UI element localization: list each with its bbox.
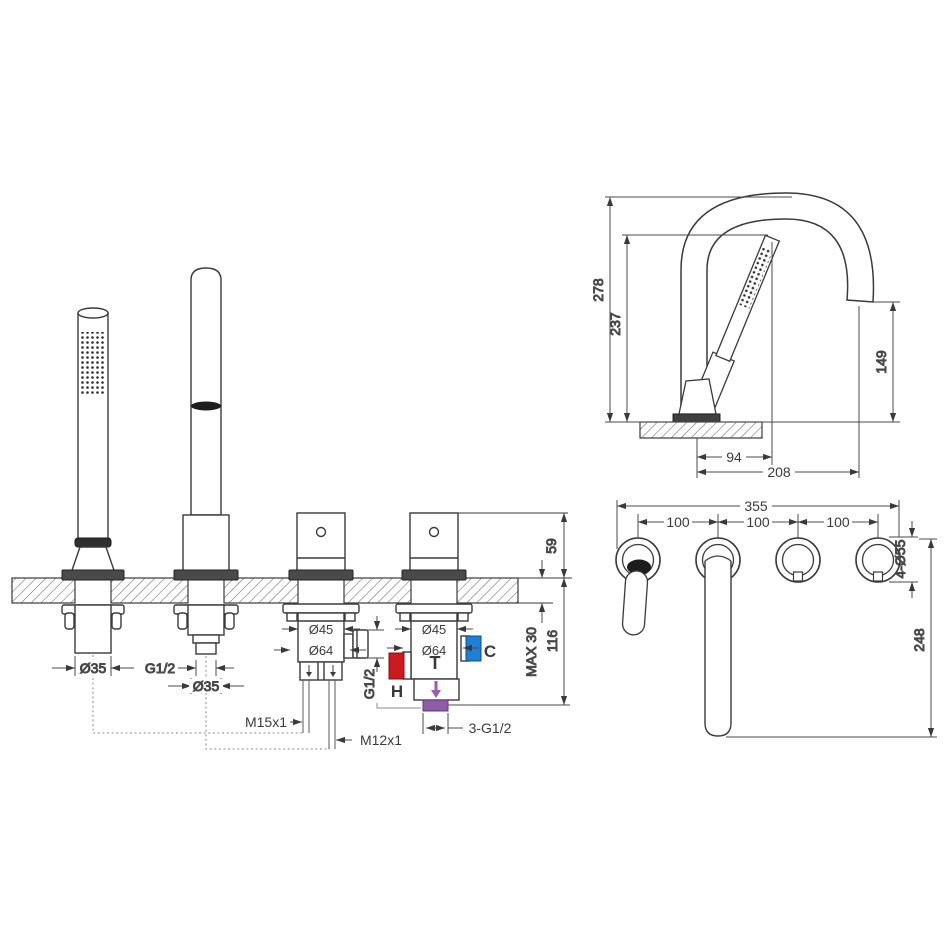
spout-underdeck-body [188, 605, 224, 635]
hot-inlet-block [389, 653, 404, 679]
outlet-left-thread-label: M15x1 [245, 714, 287, 730]
spout-diameter-label: Ø35 [193, 678, 220, 694]
connection-routing-lines [93, 655, 330, 749]
diverter-flange [283, 604, 359, 613]
mixer-handle-screw [430, 528, 439, 537]
spout-projection-label: 248 [911, 628, 927, 652]
mixer-flange [396, 604, 472, 613]
dim-spout-diameter: Ø35 [168, 678, 244, 694]
total-span-label: 355 [744, 498, 768, 514]
outlet-right-thread-label: M12x1 [360, 732, 402, 748]
dim-spout-thread: G1/2 [145, 660, 234, 676]
mix-outlet-block [423, 700, 448, 711]
diverter-handle [297, 513, 345, 572]
spout-base-block [183, 515, 229, 571]
cold-label: C [484, 642, 496, 661]
handle-height-label: 59 [543, 538, 559, 554]
handshower-top-height-label: 237 [607, 312, 623, 336]
dim-connections: 3-G1/2 [423, 713, 512, 736]
diverter-top-diameter-label: Ø45 [309, 622, 334, 637]
diverter-handle-screw [317, 528, 326, 537]
diverter-side-port-thread-label: G1/2 [361, 669, 377, 700]
mixer-body-diameter-label: Ø64 [422, 643, 447, 658]
handshower-deck-ring [62, 570, 124, 580]
diverter-deck-ring [289, 570, 353, 580]
handshower-side-spray-face [739, 247, 773, 309]
front-view: Ø35 G1/2 Ø35 [12, 268, 572, 749]
hole-diameter-label: 4-Ø55 [892, 539, 908, 578]
diverter-side-port [353, 630, 368, 658]
side-view: 278 237 149 94 208 [590, 193, 900, 480]
spout-reach-label: 208 [767, 464, 791, 480]
handshower-spray-face [81, 332, 105, 396]
deck-thickness-label: MAX 30 [523, 627, 539, 677]
technical-drawing: Ø35 G1/2 Ø35 [0, 0, 950, 950]
dim-handshower-diameter: Ø35 [52, 656, 134, 676]
mixer-handle-notch [874, 572, 883, 581]
diverter-outlet-section [300, 662, 342, 680]
mixer-handle [410, 513, 458, 572]
spout-outlet-height-label: 149 [873, 350, 889, 374]
hot-label: H [391, 682, 403, 701]
dim-top-spacings: 355 100 100 100 [617, 498, 899, 549]
spout-inlet-nipple [196, 643, 216, 654]
spout-offset-label: 94 [726, 449, 742, 465]
dim-hole-diameter: 4-Ø55 [889, 521, 918, 598]
connections-label: 3-G1/2 [469, 720, 512, 736]
dim-front-heights: 59 MAX 30 116 [523, 513, 564, 705]
handshower-top-wand [622, 570, 648, 635]
spout-top-tube [705, 561, 731, 736]
diverter-handle-notch [794, 572, 803, 581]
spout-thread-label: G1/2 [145, 660, 176, 676]
spacing-3-label: 100 [826, 514, 850, 530]
overall-height-label: 278 [590, 278, 606, 302]
spout-aerator-band [191, 402, 221, 411]
spacing-1-label: 100 [666, 514, 690, 530]
spacing-2-label: 100 [746, 514, 770, 530]
handshower-grip-ring [75, 538, 111, 547]
under-deck-depth-label: 116 [544, 630, 560, 653]
diverter-outlet-tails [303, 680, 335, 749]
top-view: 355 100 100 100 [616, 498, 937, 737]
spout-deck-ring [174, 570, 238, 580]
handshower-underdeck-body [75, 605, 111, 653]
deck-front [12, 578, 572, 603]
drawing-canvas: Ø35 G1/2 Ø35 [0, 0, 950, 950]
top-view-holes [616, 538, 900, 736]
side-base-plate [673, 414, 720, 422]
diverter-body-diameter-label: Ø64 [309, 643, 334, 658]
handshower-top-cap [78, 308, 108, 318]
mixer-deck-ring [402, 570, 466, 580]
handshower-diameter-label: Ø35 [80, 660, 107, 676]
dim-outlet-threads: M15x1 M12x1 [245, 714, 402, 748]
mixer-top-diameter-label: Ø45 [422, 622, 447, 637]
deck-side [640, 422, 762, 438]
